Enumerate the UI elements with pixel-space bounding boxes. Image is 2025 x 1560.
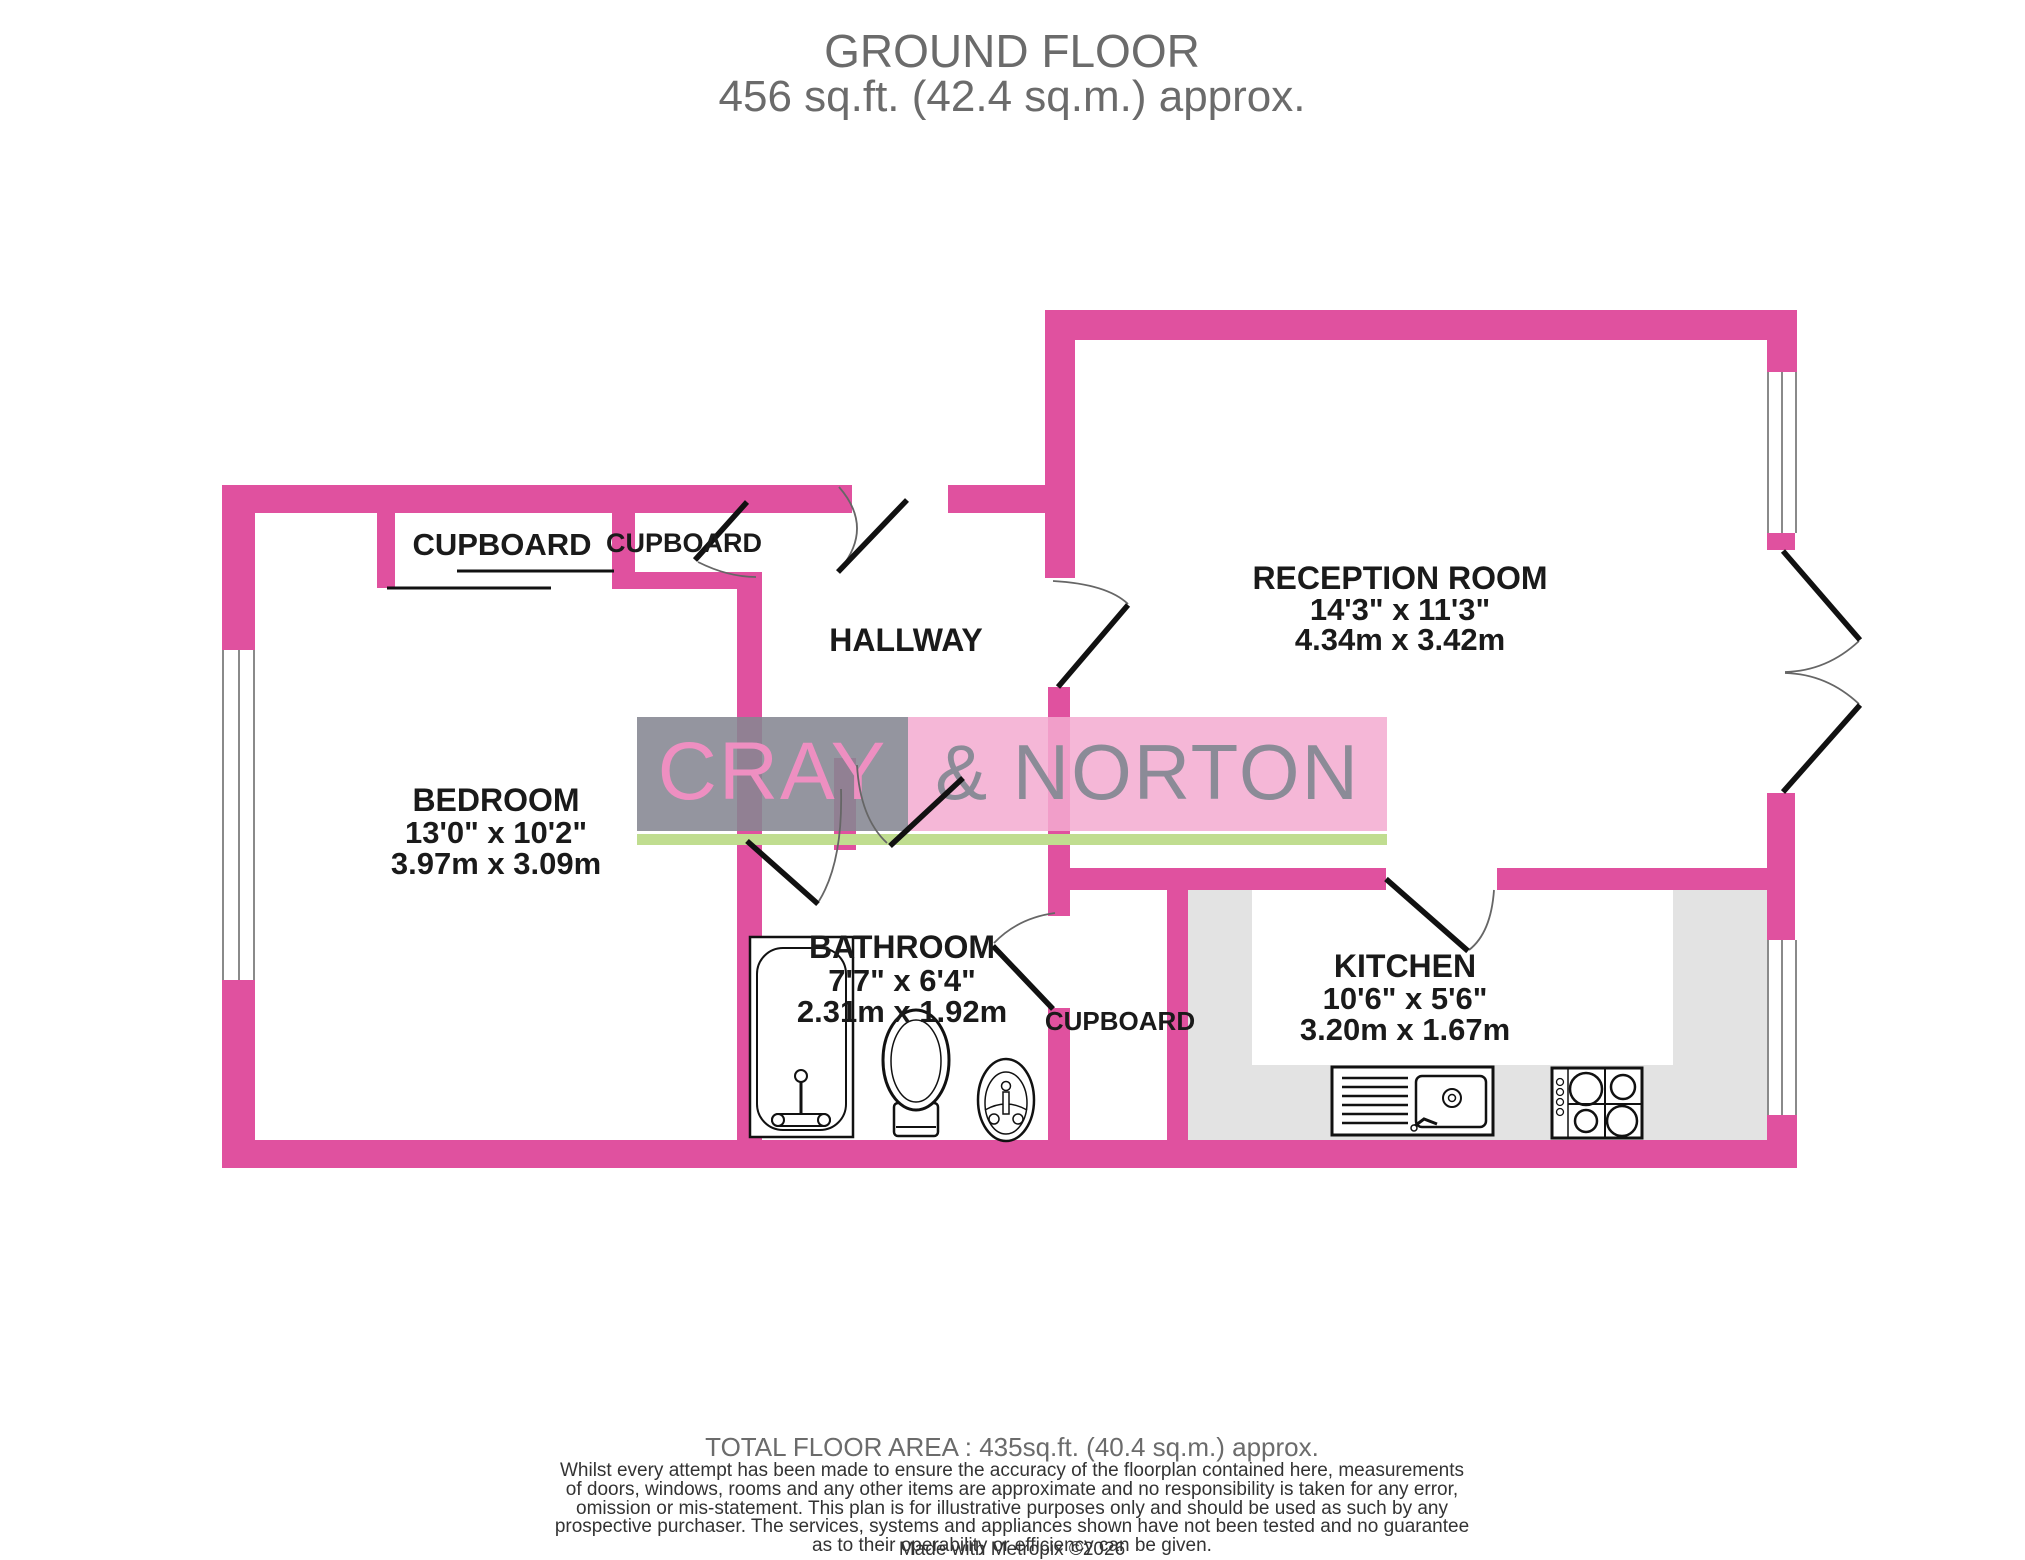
- hallway-name: HALLWAY: [829, 622, 983, 659]
- door-reception: [1053, 581, 1128, 687]
- kitchen-metric: 3.20m x 1.67m: [1300, 1012, 1510, 1048]
- wall-cupboard1-left: [377, 513, 395, 588]
- cupboard-top-right-name: CUPBOARD: [606, 528, 762, 559]
- wall-right-lower: [1767, 1115, 1797, 1168]
- metropix-credit: Made with Metropix ©2026: [899, 1541, 1125, 1560]
- kitchen-name: KITCHEN: [1334, 948, 1476, 985]
- window-reception: [1767, 372, 1797, 533]
- window-bedroom: [222, 650, 255, 980]
- wall-reception-right-stub: [1767, 533, 1795, 550]
- wall-right-mid: [1767, 793, 1795, 940]
- french-doors-reception: [1783, 551, 1860, 792]
- window-glass-line: [238, 650, 240, 980]
- kitchen-counter-right: [1673, 890, 1767, 1140]
- cupboard-top-left-name: CUPBOARD: [412, 527, 591, 563]
- bathroom-metric: 2.31m x 1.92m: [797, 994, 1007, 1030]
- watermark-text-left: CRAY: [637, 717, 908, 831]
- basin: [978, 1059, 1034, 1141]
- wall-reception-top: [1045, 310, 1797, 340]
- wall-reception-left-upper: [1045, 310, 1075, 578]
- cupboard-lower-name: CUPBOARD: [1045, 1006, 1195, 1037]
- bedroom-metric: 3.97m x 3.09m: [391, 846, 601, 882]
- window-glass-line: [1781, 940, 1783, 1115]
- wall-left-lower: [222, 980, 255, 1140]
- wall-reception-right-upper: [1767, 310, 1797, 372]
- cupboard-front-lines: [387, 571, 614, 588]
- window-kitchen: [1767, 940, 1797, 1115]
- wall-bedroom-right: [737, 572, 762, 1140]
- wall-bathroom-right-upper: [1048, 890, 1070, 916]
- wall-bottom: [222, 1140, 1797, 1168]
- wall-left-upper: [222, 485, 255, 650]
- watermark-green-bar: [637, 834, 1387, 845]
- wall-kitchen-left: [1167, 868, 1188, 1140]
- total-floor-area: TOTAL FLOOR AREA : 435sq.ft. (40.4 sq.m.…: [705, 1432, 1319, 1463]
- wall-top-left-section: [222, 485, 852, 513]
- wall-divider-left: [1048, 868, 1386, 890]
- page-title: GROUND FLOOR: [824, 24, 1200, 78]
- wall-top-hall-right: [948, 485, 1048, 513]
- page-subtitle: 456 sq.ft. (42.4 sq.m.) approx.: [719, 72, 1306, 122]
- bathroom-name: BATHROOM: [809, 929, 995, 966]
- bedroom-name: BEDROOM: [412, 782, 579, 819]
- window-glass-line: [1781, 372, 1783, 533]
- reception-room-metric: 4.34m x 3.42m: [1295, 622, 1505, 658]
- watermark-text-right: & NORTON: [908, 717, 1387, 831]
- door-kitchen: [1386, 879, 1494, 951]
- wall-divider-right: [1497, 868, 1767, 890]
- wall-cupboard2-bottom: [612, 572, 762, 589]
- floorplan-page: GROUND FLOOR 456 sq.ft. (42.4 sq.m.) app…: [0, 0, 2025, 1560]
